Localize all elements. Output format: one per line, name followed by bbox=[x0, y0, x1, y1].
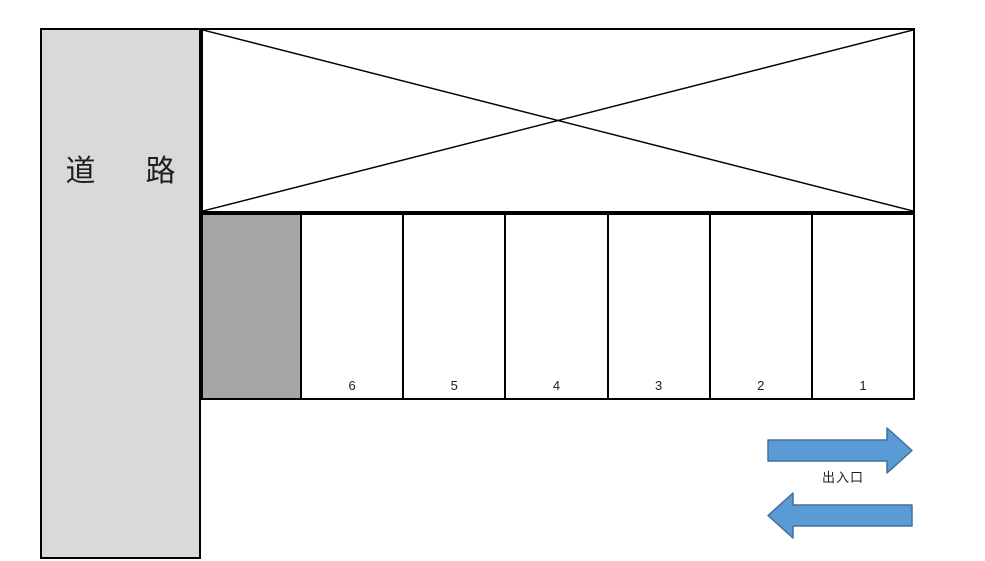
x-mark-icon bbox=[203, 30, 913, 211]
parking-space-label: 5 bbox=[404, 378, 504, 393]
blocked-area bbox=[201, 28, 915, 213]
parking-lot-diagram: 道 路 6 5 4 3 2 1 bbox=[0, 0, 985, 561]
parking-space-label: 2 bbox=[711, 378, 811, 393]
road-area: 道 路 bbox=[40, 28, 201, 559]
parking-space-4: 4 bbox=[506, 215, 608, 398]
parking-space-5: 5 bbox=[404, 215, 506, 398]
parking-space-occupied bbox=[203, 215, 302, 398]
exit-arrow-left-icon bbox=[766, 492, 913, 539]
parking-space-3: 3 bbox=[609, 215, 711, 398]
parking-space-2: 2 bbox=[711, 215, 813, 398]
gate-label: 出入口 bbox=[822, 467, 864, 486]
parking-space-label: 1 bbox=[813, 378, 913, 393]
parking-row: 6 5 4 3 2 1 bbox=[201, 213, 915, 400]
parking-space-6: 6 bbox=[302, 215, 404, 398]
parking-space-label: 3 bbox=[609, 378, 709, 393]
road-label: 道 路 bbox=[56, 146, 186, 190]
parking-space-1: 1 bbox=[813, 215, 913, 398]
parking-space-label: 4 bbox=[506, 378, 606, 393]
parking-space-label: 6 bbox=[302, 378, 402, 393]
